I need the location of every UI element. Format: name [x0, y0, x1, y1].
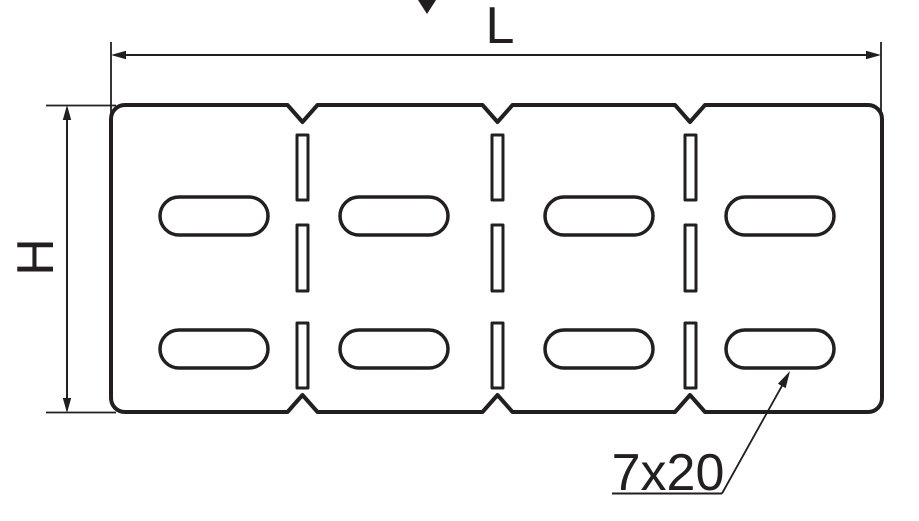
arrowhead-down-icon	[63, 398, 71, 413]
oblong-slot	[340, 197, 448, 235]
slot-size-label: 7x20	[612, 444, 725, 502]
oblong-slot	[340, 330, 448, 368]
oblong-slot	[545, 330, 653, 368]
divider-slit	[297, 225, 308, 291]
divider-slit	[685, 323, 696, 388]
divider-slit	[492, 135, 503, 200]
divider-slit	[297, 323, 308, 388]
oblong-slot	[726, 330, 834, 368]
top-pointer-arrow-icon	[418, 0, 436, 14]
length-dimension: L	[111, 0, 881, 121]
height-dimension-label: H	[7, 238, 65, 276]
divider-slit	[685, 225, 696, 291]
divider-slit	[492, 225, 503, 291]
oblong-slot	[160, 330, 268, 368]
technical-drawing-page: L H 7x20	[0, 0, 919, 521]
oblong-slot	[160, 197, 268, 235]
plate-technical-drawing: L H 7x20	[0, 0, 919, 521]
arrowhead-right-icon	[866, 51, 881, 59]
arrowhead-left-icon	[111, 51, 126, 59]
oblong-slot	[726, 197, 834, 235]
height-dimension: H	[7, 105, 116, 413]
divider-slit	[492, 323, 503, 388]
divider-slit	[685, 135, 696, 200]
divider-slit	[297, 135, 308, 200]
arrowhead-up-icon	[63, 105, 71, 120]
length-dimension-label: L	[486, 0, 515, 55]
oblong-slot	[545, 197, 653, 235]
